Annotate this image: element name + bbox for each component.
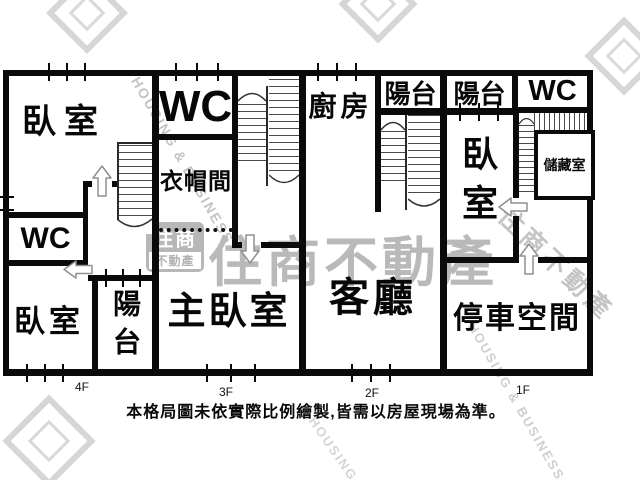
stair-edge <box>117 142 152 144</box>
window-ticks <box>0 196 14 198</box>
staircase-1f <box>519 125 534 192</box>
room-label-2f-kitchen: 廚房 <box>306 84 375 126</box>
stair-divider <box>405 115 407 210</box>
staircase-3f <box>269 79 299 177</box>
wall-divider-3f-2f <box>299 70 306 376</box>
staircase-2f <box>381 131 405 185</box>
wall-1f-parking <box>447 257 519 263</box>
wall-outer-right <box>587 70 593 376</box>
room-label-4f-bedroom: 臥室 <box>9 90 119 146</box>
room-label-1f-parking: 停車空間 <box>447 292 587 338</box>
closet-open-boundary <box>159 228 233 232</box>
storage-label: 儲藏室 <box>544 155 586 175</box>
stair-arc <box>238 86 266 102</box>
window-ticks <box>0 209 14 211</box>
room-label-1f-wc: WC <box>518 76 587 107</box>
door-arrow-up <box>519 243 539 275</box>
room-label-4f-balcony: 陽台 <box>98 284 152 370</box>
wall-1f-hall <box>513 113 519 198</box>
room-label-3f-closet: 衣帽間 <box>157 160 235 198</box>
room-label-1f-bedroom: 臥室 <box>452 134 502 234</box>
room-label-4f-bedroom-2: 臥室 <box>3 296 95 340</box>
wall-1f-parking <box>538 257 587 263</box>
window-ticks <box>317 63 357 81</box>
storage-room: 儲藏室 <box>534 130 595 200</box>
stair-arc <box>269 174 299 190</box>
room-label-3f-master-bedroom: 主臥室 <box>159 280 299 334</box>
stair-arc <box>117 218 152 234</box>
wall-divider-2f-1f <box>440 70 447 376</box>
window-ticks <box>351 364 391 382</box>
stair-arc <box>408 198 440 213</box>
door-arrow-left <box>63 260 93 279</box>
stair-divider <box>266 86 268 186</box>
stair-arc <box>381 115 405 131</box>
window-ticks <box>26 364 64 382</box>
room-label-4f-wc: WC <box>3 218 88 260</box>
wall-3f-wc-bottom <box>159 134 238 140</box>
room-label-1f-balcony: 陽台 <box>447 76 512 108</box>
door-arrow-left <box>498 197 528 217</box>
brand-en-watermark: HOUSING & BUSINESS <box>306 414 421 480</box>
brand-diamond-watermark <box>46 0 128 54</box>
wall-4f-hall-top <box>83 181 92 187</box>
wall-3f-stair-bottom <box>261 242 306 248</box>
window-ticks <box>206 364 256 382</box>
room-label-2f-living-room: 客廳 <box>306 268 440 320</box>
staircase-1f <box>534 113 587 130</box>
stair-arc <box>519 113 534 125</box>
wall-outer-bottom <box>3 369 593 376</box>
brand-diamond-watermark <box>338 0 417 44</box>
staircase-3f <box>238 104 266 162</box>
floor-label-3f: 3F <box>206 385 246 399</box>
door-arrow-down <box>240 234 260 264</box>
room-label-2f-balcony: 陽台 <box>381 76 440 108</box>
floor-label-4f: 4F <box>62 380 102 394</box>
window-ticks <box>175 63 219 81</box>
room-label-3f-wc: WC <box>159 80 232 134</box>
window-ticks <box>48 63 86 81</box>
disclaimer-text: 本格局圖未依實際比例繪製,皆需以房屋現場為準。 <box>0 398 632 422</box>
door-arrow-up <box>92 165 112 197</box>
staircase-2f <box>408 115 440 198</box>
floor-plan: HOUSING & BUSINESS 住商不動產 HOUSING & BUSIN… <box>0 0 640 480</box>
staircase-4f <box>119 145 152 221</box>
floor-label-1f: 1F <box>503 383 543 397</box>
